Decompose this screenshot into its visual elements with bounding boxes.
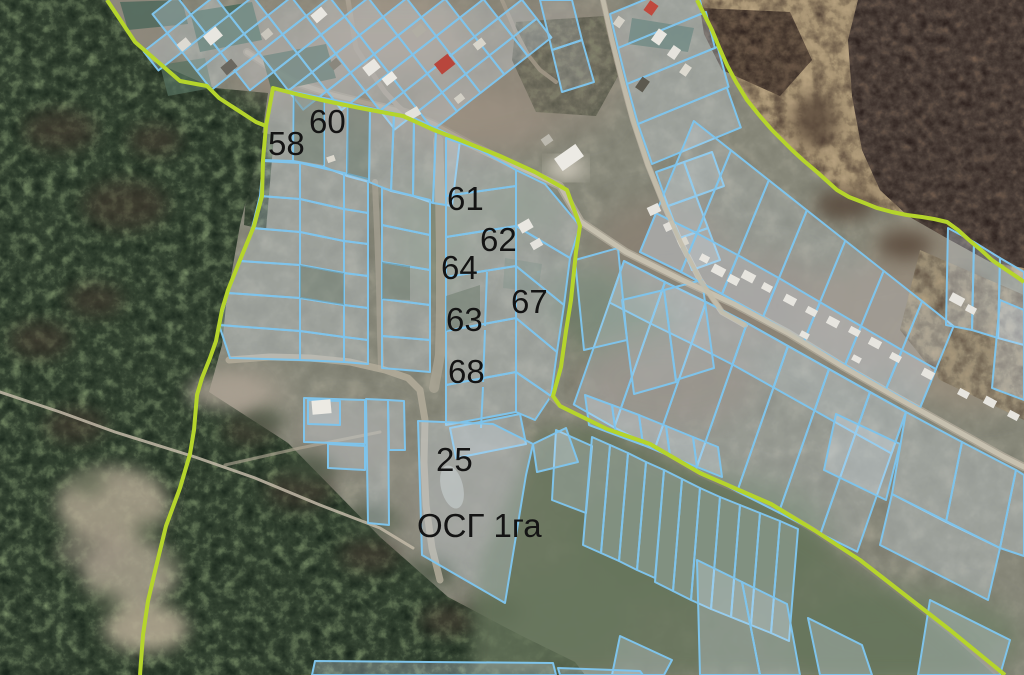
svg-text:61: 61 [447,180,484,217]
svg-text:64: 64 [441,249,478,286]
svg-text:63: 63 [446,301,483,338]
svg-text:25: 25 [436,441,473,478]
svg-text:62: 62 [480,221,517,258]
svg-text:ОСГ 1га: ОСГ 1га [417,507,542,544]
svg-text:67: 67 [511,283,548,320]
svg-text:58: 58 [268,125,305,162]
svg-text:68: 68 [448,353,485,390]
svg-text:60: 60 [309,103,346,140]
